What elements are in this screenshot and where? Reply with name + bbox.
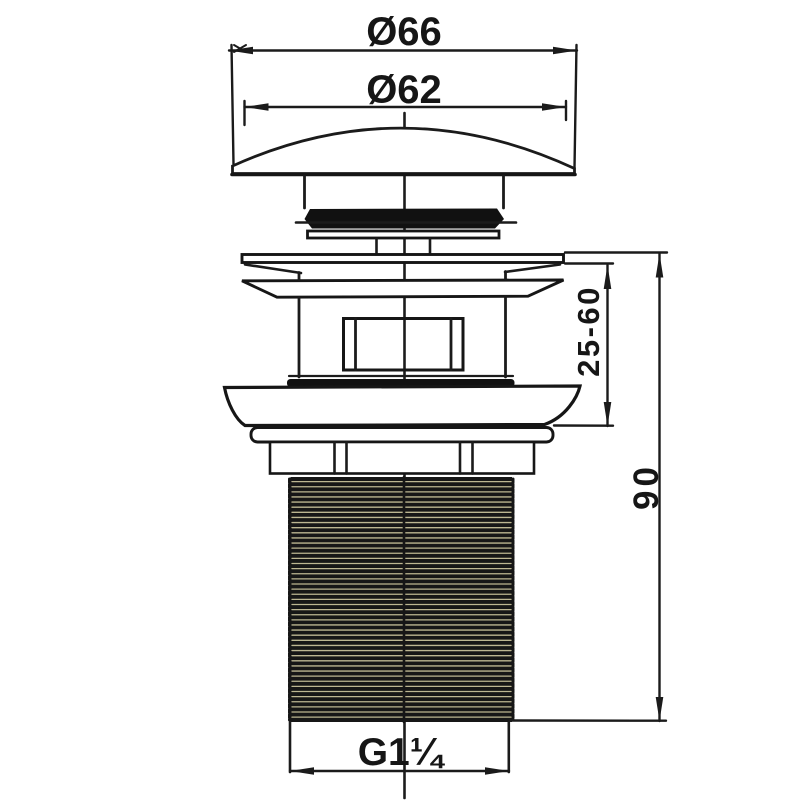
svg-text:Ø66: Ø66 [366, 10, 442, 54]
svg-text:Ø62: Ø62 [366, 68, 442, 112]
svg-text:25-60: 25-60 [571, 285, 606, 377]
svg-text:G1¼: G1¼ [358, 731, 446, 774]
